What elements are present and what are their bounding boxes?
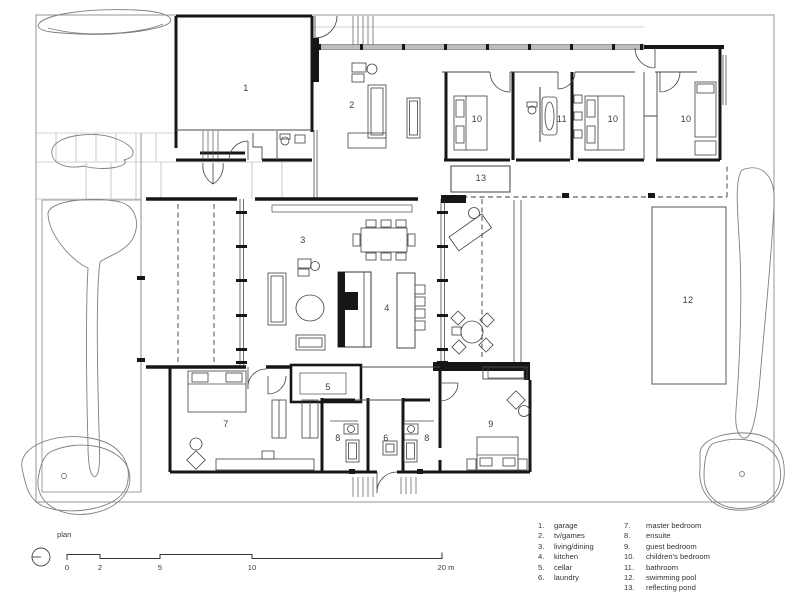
furniture bbox=[187, 63, 716, 470]
desk-tv-room bbox=[352, 63, 366, 72]
room-label-guest-bedroom: 9 bbox=[488, 419, 493, 429]
walls-bold-fills bbox=[312, 38, 530, 474]
legend-item-laundry: 6.laundry bbox=[538, 573, 594, 583]
overhang-dashed-lines bbox=[178, 164, 727, 363]
room-label-ensuite-east: 8 bbox=[424, 433, 429, 443]
legend-item-cellar: 5.cellar bbox=[538, 563, 594, 573]
room-label-bathroom: 11 bbox=[557, 114, 567, 124]
terrace-table bbox=[461, 321, 483, 343]
site-boundary bbox=[36, 15, 774, 502]
tree-east bbox=[736, 168, 774, 438]
bed-master bbox=[188, 371, 246, 412]
tree-southwest-a bbox=[22, 437, 129, 511]
room-label-childrens-1: 10 bbox=[472, 114, 483, 124]
tree-west-garden bbox=[48, 199, 137, 476]
scale-tick-20: 20 m bbox=[438, 563, 455, 572]
room-label-laundry: 6 bbox=[383, 433, 388, 443]
side-table bbox=[407, 98, 420, 138]
room-label-swimming-pool: 12 bbox=[683, 295, 694, 305]
bed-children-3 bbox=[695, 82, 716, 137]
room-label-master-bedroom: 7 bbox=[223, 419, 228, 429]
tree-trunk-dot-se bbox=[740, 472, 745, 477]
legend-item-swimming-pool: 12.swimming pool bbox=[624, 573, 710, 583]
glazing-mullion-ticks bbox=[236, 44, 643, 364]
legend-item-master-bedroom: 7.master bedroom bbox=[624, 521, 710, 531]
north-symbol bbox=[32, 548, 51, 566]
round-table bbox=[296, 295, 324, 321]
beam-over-living bbox=[272, 205, 412, 212]
scale-tick-0: 0 bbox=[65, 563, 69, 572]
dresser bbox=[216, 459, 314, 470]
legend-item-kitchen: 4.kitchen bbox=[538, 552, 594, 562]
legend-item-tv-games: 2.tv/games bbox=[538, 531, 594, 541]
small-desk bbox=[298, 259, 311, 268]
tree-southwest-b bbox=[38, 445, 130, 514]
room-label-tv-games: 2 bbox=[349, 100, 354, 110]
laundry-appliance bbox=[383, 441, 397, 455]
room-label-childrens-2: 10 bbox=[608, 114, 619, 124]
kitchen-island-solids bbox=[338, 272, 358, 347]
legend-column-1: 1.garage 2.tv/games 3.living/dining 4.ki… bbox=[538, 521, 594, 583]
legend-column-2: 7.master bedroom 8.ensuite 9.guest bedro… bbox=[624, 521, 710, 594]
desk-chair bbox=[367, 64, 377, 74]
room-label-childrens-3: 10 bbox=[681, 114, 692, 124]
legend-item-childrens-bedroom: 10.children's bedroom bbox=[624, 552, 710, 562]
room-label-garage: 1 bbox=[243, 83, 248, 93]
legend-item-guest-bedroom: 9.guest bedroom bbox=[624, 542, 710, 552]
legend-item-living-dining: 3.living/dining bbox=[538, 542, 594, 552]
dining-table bbox=[361, 228, 407, 252]
scale-tick-5: 5 bbox=[158, 563, 162, 572]
stairs bbox=[203, 16, 416, 497]
floor-plan-page: 1 2 3 4 5 6 7 8 8 9 10 10 10 11 12 13 pl… bbox=[0, 0, 800, 598]
room-label-reflecting-pond: 13 bbox=[476, 173, 487, 183]
stairs-garage-lobby bbox=[203, 131, 218, 159]
bathtub bbox=[542, 97, 557, 135]
room-label-cellar: 5 bbox=[325, 382, 330, 392]
room-label-kitchen: 4 bbox=[384, 303, 389, 313]
room-label-living-dining: 3 bbox=[300, 235, 305, 245]
tree-trunk-dot-sw bbox=[62, 474, 67, 479]
room-label-ensuite-west: 8 bbox=[335, 433, 340, 443]
legend-item-garage: 1.garage bbox=[538, 521, 594, 531]
tree-southeast-b bbox=[704, 439, 781, 508]
stairs-south-left bbox=[353, 477, 373, 497]
kitchen-counter bbox=[397, 273, 415, 348]
coffee-table bbox=[296, 335, 325, 350]
dashed-line-ticks bbox=[137, 193, 655, 362]
plan-caption: plan bbox=[57, 530, 71, 539]
stairs-south-right bbox=[401, 477, 416, 494]
legend-item-bathroom: 11.bathroom bbox=[624, 563, 710, 573]
scale-bar bbox=[67, 553, 442, 561]
shrub-entry-court bbox=[52, 134, 133, 168]
floor-plan-drawing bbox=[0, 0, 800, 598]
legend-item-ensuite: 8.ensuite bbox=[624, 531, 710, 541]
scale-tick-2: 2 bbox=[98, 563, 102, 572]
walls-bold bbox=[146, 16, 724, 472]
study-chair bbox=[469, 208, 480, 219]
cellar-stair bbox=[300, 373, 346, 394]
bed-guest bbox=[477, 437, 518, 470]
paving-grid bbox=[36, 27, 644, 199]
stairs-north-entry bbox=[353, 16, 373, 45]
legend-item-reflecting-pond: 13.reflecting pond bbox=[624, 583, 710, 593]
study-desk bbox=[449, 214, 492, 251]
walls-thin bbox=[176, 72, 697, 400]
scale-tick-10: 10 bbox=[248, 563, 256, 572]
